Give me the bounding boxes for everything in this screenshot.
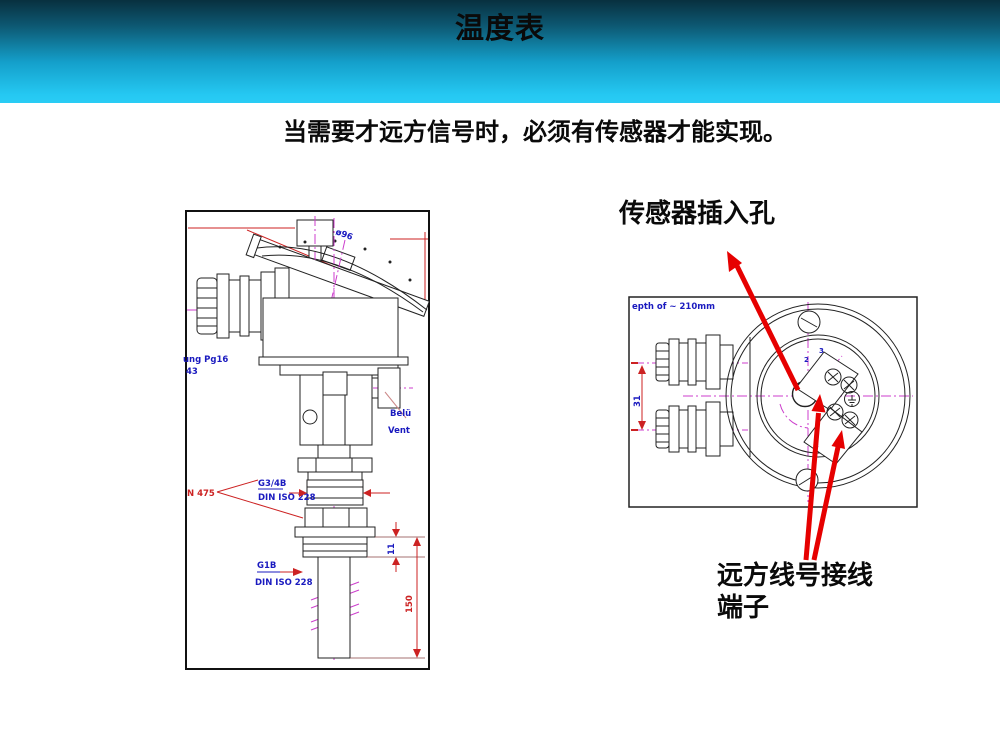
slide-subtitle: 当需要才远方信号时，必须有传感器才能实现。 (283, 112, 787, 147)
drawing-border (629, 297, 917, 507)
thread-upper-label: G3/4B (258, 479, 286, 489)
page-title: 温度表 (0, 5, 1000, 47)
gland-label-line1: ung Pg16 (183, 355, 228, 365)
right-technical-drawing: epth of ~ 210mm 31 (628, 296, 918, 508)
terminal-label: 远方线号接线 端子 (717, 560, 917, 624)
sensor-hole-label: 传感器插入孔 (619, 193, 775, 230)
terminal-number-2: 2 (804, 356, 809, 364)
dim-11-label: 11 (387, 543, 397, 555)
thread-upper-std-label: DIN ISO 228 (258, 493, 316, 503)
vent-label-line2: Vent (388, 426, 410, 436)
dim-31-label: 31 (633, 395, 643, 407)
dim-150-label: 150 (405, 595, 415, 613)
terminal-label-line1: 远方线号接线 (717, 560, 917, 592)
depth-note: epth of ~ 210mm (632, 302, 715, 312)
slide-header-banner: 温度表 (0, 0, 1000, 103)
din475-label: N 475 (187, 489, 215, 499)
gland-label-line2: 43 (186, 367, 198, 377)
terminal-number-3b: 3 (814, 442, 819, 450)
left-technical-drawing: ø96 (185, 210, 430, 670)
vent-label-line1: Belü (390, 409, 411, 419)
thread-lower-std-label: DIN ISO 228 (255, 578, 313, 588)
thread-lower-label: G1B (257, 561, 276, 571)
terminal-number-3: 3 (819, 347, 824, 355)
terminal-label-line2: 端子 (717, 592, 917, 624)
